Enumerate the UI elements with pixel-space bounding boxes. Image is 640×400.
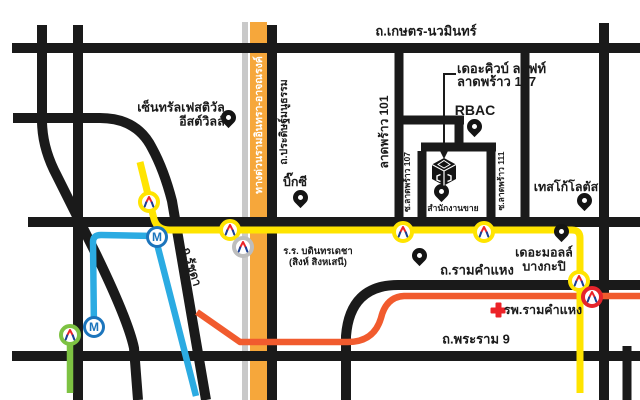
yellow-line-station xyxy=(392,221,414,243)
destination-line2: ลาดพร้าว 107 xyxy=(457,75,546,88)
destination-label: เดอะคิวบ์ ลอฟท์ ลาดพร้าว 107 xyxy=(457,62,546,88)
the-mall-line2: บางกะปิ xyxy=(515,260,573,274)
road-label-soi-ladprao-107: ซ.ลาดพร้าว 107 xyxy=(403,152,413,212)
school-label: ร.ร. บดินทรเดชา (สิงห์ สิงหเสนี) xyxy=(283,247,352,269)
school-line2: (สิงห์ สิงหเสนี) xyxy=(283,258,352,269)
road-label-soi-ladprao-111: ซ.ลาดพร้าว 111 xyxy=(497,152,507,211)
mrta-logo-icon xyxy=(237,241,249,253)
hospital-label: รพ.รามคำแหง xyxy=(504,303,582,317)
mrt-station-letter: M xyxy=(89,320,99,334)
mrt-station-letter: M xyxy=(152,230,162,244)
mrta-logo-icon xyxy=(478,226,490,238)
location-map: M M ถ.เกษตร-นวมินทร์ เซ็นทรัลเฟสติวัล อี… xyxy=(0,0,640,400)
central-festival-label: เซ็นทรัลเฟสติวัล อีสต์วิลล์ xyxy=(137,101,224,130)
green-line-station xyxy=(59,324,81,346)
sales-office-label: สำนักงานขาย xyxy=(427,204,478,214)
rbac-label: RBAC xyxy=(455,102,495,118)
road-label-ramkhamhaeng: ถ.รามคำแหง xyxy=(440,264,514,279)
orange-line-interchange-station xyxy=(581,286,603,308)
the-mall-line1: เดอะมอลล์ xyxy=(515,246,573,260)
mrta-logo-icon xyxy=(573,275,585,287)
yellow-line-station xyxy=(473,221,495,243)
central-festival-line1: เซ็นทรัลเฟสติวัล xyxy=(137,101,224,115)
road-left-diagonal xyxy=(42,25,138,400)
road-label-ladprao-101: ลาดพร้าว 101 xyxy=(378,95,392,168)
mrta-logo-icon xyxy=(224,224,236,236)
mrta-logo-icon xyxy=(586,291,598,303)
the-mall-label: เดอะมอลล์ บางกะปิ xyxy=(515,246,573,275)
road-label-rama-9: ถ.พระราม 9 xyxy=(442,333,510,348)
yellow-line-station xyxy=(138,191,160,213)
mrt-station-badge: M xyxy=(83,316,105,338)
mrt-station-badge: M xyxy=(146,226,168,248)
mrta-logo-icon xyxy=(64,329,76,341)
mrta-logo-icon xyxy=(397,226,409,238)
road-label-pradit-manutham: ถ.ประดิษฐ์มนูธรรม xyxy=(278,79,290,164)
tesco-lotus-label: เทสโก้โลตัส xyxy=(534,180,599,194)
central-festival-line2: อีสต์วิลล์ xyxy=(137,115,224,129)
big-c-label: บิ๊กซี xyxy=(283,175,307,189)
expressway-interchange-station xyxy=(232,236,254,258)
the-cube-logo-icon xyxy=(431,158,457,191)
expressway-label: ทางด่วนรามอินทรา-อาจณรงค์ xyxy=(253,56,265,194)
road-label-kaset-nawamin: ถ.เกษตร-นวมินทร์ xyxy=(375,25,476,40)
mrta-logo-icon xyxy=(143,196,155,208)
road-network xyxy=(0,0,640,400)
